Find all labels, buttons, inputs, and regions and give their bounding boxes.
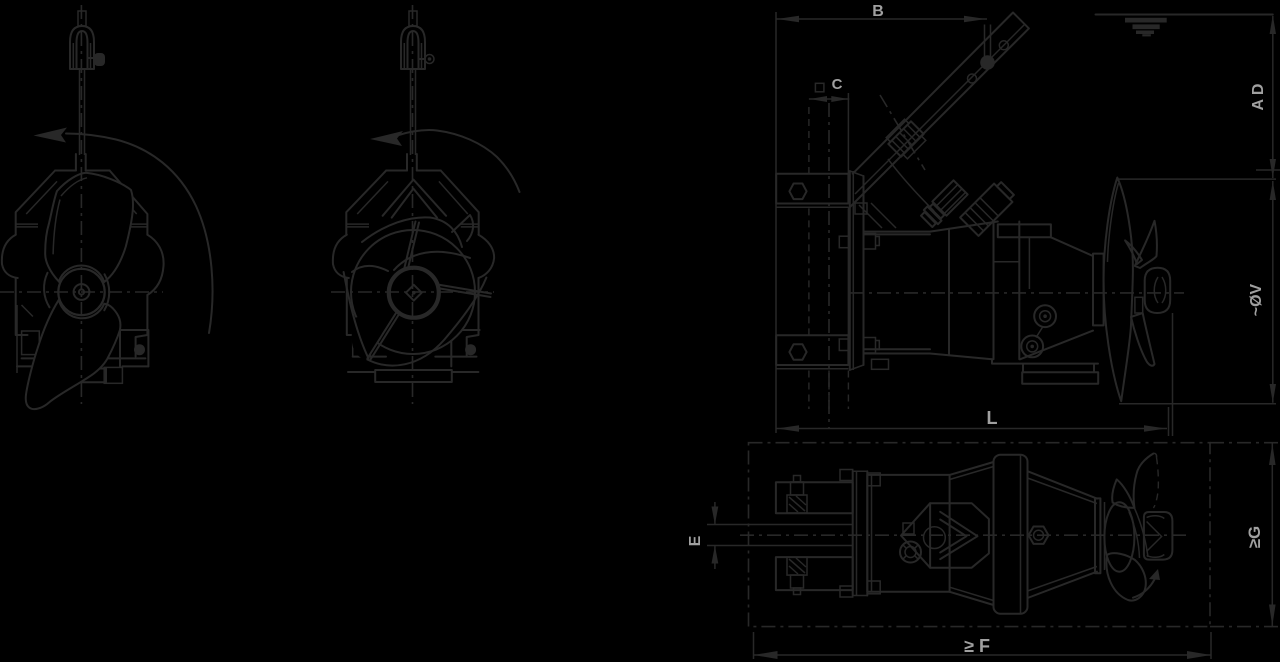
svg-text:≥G: ≥G xyxy=(1245,526,1264,549)
svg-text:A D: A D xyxy=(1250,84,1267,111)
svg-text:E: E xyxy=(687,535,704,546)
svg-text:L: L xyxy=(987,408,998,428)
svg-text:≥ F: ≥ F xyxy=(964,636,990,656)
svg-text:~ØV: ~ØV xyxy=(1248,283,1265,316)
svg-text:C: C xyxy=(832,76,843,93)
svg-text:B: B xyxy=(872,3,884,20)
